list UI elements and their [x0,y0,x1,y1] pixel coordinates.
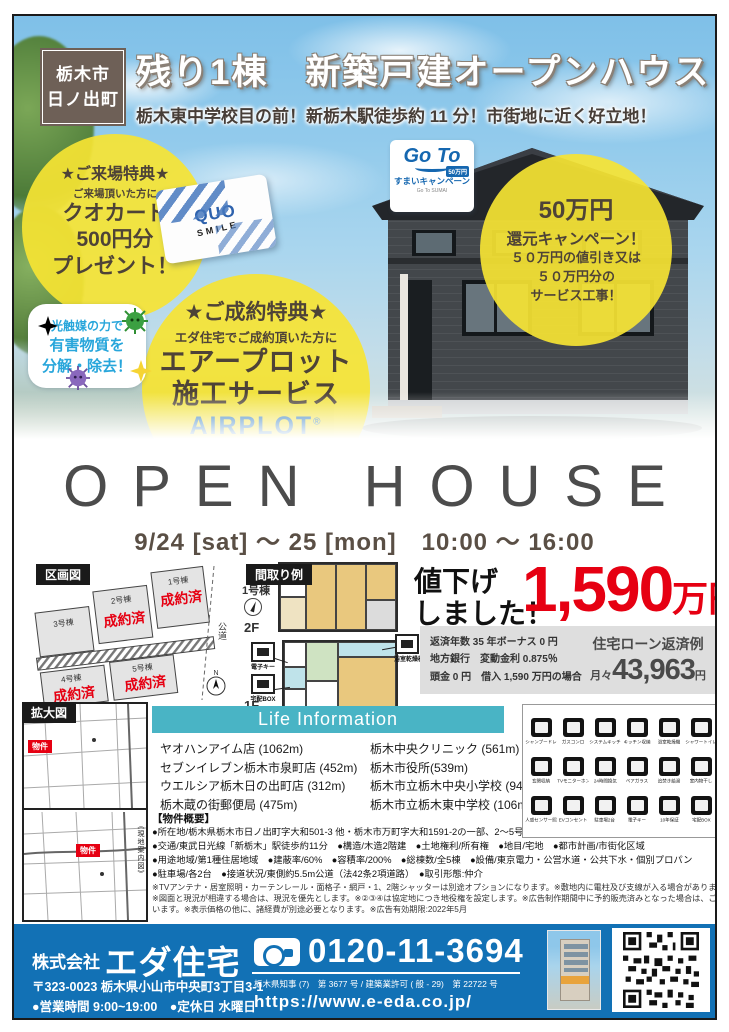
equipment-label: 追焚き給湯 [658,777,681,784]
equipment-icon [627,718,648,737]
equipment-label: システムキッチン [589,738,621,745]
equipment-icon-grid: シャンプードレッサー ガスコンロ システムキッチン キッチン収納 [522,704,717,838]
equipment-label: 10年保証 [660,816,679,823]
equipment-icon [691,718,712,737]
equipment-item: 10年保証 [654,796,685,824]
price-number: 1,590 [522,553,672,625]
equipment-item: 浴室乾燥機 [654,718,685,746]
cashback-campaign-circle: 50万円 還元キャンペーン！ ５０万円の値引き又は ５０万円分の サービス工事！ [480,154,672,346]
delivery-box-icon [251,674,275,694]
header-photo: 栃木市 日ノ出町 残り1棟 新築戸建オープンハウス 栃木東中学校目の前！新栃木駅… [14,16,715,447]
flyer: 栃木市 日ノ出町 残り1棟 新築戸建オープンハウス 栃木東中学校目の前！新栃木駅… [0,0,729,1032]
loan-condition-1: 返済年数 35 年ボーナス 0 円 [430,634,590,652]
life-info-left-column: ヤオハンアイム店 (1062m)セブンイレブン栃木市泉町店 (452m)ウエルシ… [160,740,370,814]
business-hours: ●営業時間 9:00~19:00 ●定休日 水曜日 [32,996,256,1015]
loan-condition-3: 頭金 0 円 借入 1,590 万円の場合 [430,669,590,687]
sparkle-icon [130,360,152,382]
equipment-label: 24時間換気 [593,777,616,784]
bubble-line2: 有害物質を [49,334,124,355]
campaign-title: 50万円 [480,190,672,225]
life-info-item: セブンイレブン栃木市泉町店 (452m) [160,759,370,778]
property-overview-line: ●用途地域/第1種住居地域 ●建蔽率/60% ●容積率/200% ●総棟数/全5… [152,854,717,868]
bath-dryer-icon [395,634,419,654]
loan-monthly-prefix: 月々 [590,670,612,682]
contract-benefit-line2: 施工サービス [142,378,370,410]
qr-code [623,932,699,1008]
office-building [560,939,590,1001]
delivery-box-label: 宅配BOX [250,694,276,703]
equipment-icon [627,757,648,776]
equipment-icon [659,718,680,737]
property-overview-note: います。※表示価格の他に、諸経費が別途必要となります。※広告有効期限:2022年… [152,904,717,915]
airplot-logo: AIRPLOT® [142,414,370,439]
equipment-item: 追焚き給湯 [654,757,685,785]
equipment-label: シャンプードレッサー [525,738,557,745]
contract-benefit-lead: エダ住宅でご成約頂いた方に [142,327,370,346]
campaign-line4: サービス工事！ [480,287,672,306]
life-information-banner: Life Information [152,706,504,733]
company-prefix: 株式会社 [32,953,100,972]
area-map: 拡大図 物件 物件 《現地案内図》 [22,702,148,922]
price-amount: 1,590万円 [522,552,717,626]
property-marker-2: 物件 [76,844,100,857]
location-box: 栃木市 日ノ出町 [42,50,124,124]
goto-campaign-badge: Go To 50万円 すまいキャンペーン Go To SUMAI [390,140,474,212]
equipment-label: 駐車場2台 [595,816,616,823]
equipment-item: 24時間換気 [590,757,621,785]
price-unit: 万円 [672,578,717,619]
contract-benefit-title: ★ご成約特典★ [142,296,370,326]
loan-condition-2: 地方銀行 変動金利 0.875％ [430,651,590,669]
property-overview-notes: ※TVアンテナ・居室照明・カーテンレール・面格子・網戸・1、2階シャッターは別途… [152,882,717,915]
equipment-label: 室内物干し [690,777,713,784]
equipment-item: 室内物干し [686,757,717,785]
equipment-label: 宅配BOX [692,816,711,823]
footer: 株式会社 エダ住宅 0120-11-3694 〒323-0023 栃木県小山市中… [14,924,715,1018]
floor-2f-label: 2F [244,620,259,635]
equipment-label: シャワートイレ [685,738,717,745]
airplot-kana: エアープロット [142,440,370,447]
equipment-icon [659,757,680,776]
equipment-label: TVモニターホン [557,777,589,784]
equipment-icon [691,796,712,815]
goto-sublabel: Go To SUMAI [390,188,474,194]
phone-number: 0120-11-3694 [308,932,524,970]
qr-code-box [612,928,710,1012]
equipment-icon [595,718,616,737]
loan-monthly-block: 住宅ローン返済例 月々43,963円 [590,634,706,687]
equipment-item: 駐車場2台 [590,796,621,824]
contract-benefit-line1: エアープロット [142,346,370,378]
location-line2: 日ノ出町 [47,87,119,113]
equipment-item: 電子キー [622,796,653,824]
equipment-label: 浴室乾燥機 [658,738,681,745]
equipment-label: 電子キー [628,816,646,823]
equipment-item: TVモニターホン [558,757,589,785]
equipment-icon [563,757,584,776]
electronic-key-label: 電子キー [250,662,276,671]
map-divider [24,808,146,810]
campaign-line1: 還元キャンペーン！ [480,227,672,249]
open-house-title: OPEN HOUSE [14,453,715,520]
area-map-side-label: 《現地案内図》 [135,822,145,878]
quo-card-image: QUO SMILE [155,174,277,265]
campaign-line3: ５０万円分の [480,268,672,287]
loan-title: 住宅ローン返済例 [590,634,706,654]
equipment-icon [659,796,680,815]
equipment-item: EVコンセント [558,796,589,824]
visitor-benefit-title: ★ご来場特典★ [22,160,208,184]
property-overview-note: ※TVアンテナ・居室照明・カーテンレール・面格子・網戸・1、2階シャッターは別途… [152,882,717,893]
equipment-item: 玄関収納 [526,757,557,785]
equipment-icon [627,796,648,815]
office-photo [547,930,601,1010]
floor-plan-compass-icon [244,598,262,616]
equipment-icon [691,757,712,776]
lot-map-tag: 区画図 [36,564,90,585]
annotation-electronic-key: 電子キー [250,642,276,671]
virus-icon-green [122,308,148,334]
equipment-icon [531,757,552,776]
property-marker-1: 物件 [28,740,52,753]
equipment-icon [563,718,584,737]
equipment-item: ガスコンロ [558,718,589,746]
compass-icon: N [207,670,225,695]
loan-conditions: 返済年数 35 年ボーナス 0 円 地方銀行 変動金利 0.875％ 頭金 0 … [430,634,590,687]
area-map-tag: 拡大図 [22,702,76,723]
free-dial-icon [254,938,300,966]
equipment-item: キッチン収納 [622,718,653,746]
annotation-bath-dryer: 浴室乾燥機 [394,634,420,663]
license-number: 栃木県知事 (7) 第 3677 号 / 建築業許可 ( 般 - 29) 第 2… [254,978,498,990]
equipment-label: ペアガラス [626,777,648,784]
area-map-drawing [24,704,146,920]
life-info-item: ヤオハンアイム店 (1062m) [160,740,370,759]
equipment-icon [595,757,616,776]
equipment-label: EVコンセント [559,816,588,823]
loan-monthly-amount: 43,963 [612,654,695,686]
registered-mark: ® [313,416,322,427]
main-title: 残り1棟 新築戸建オープンハウス [136,44,710,95]
bath-dryer-label: 浴室乾燥機 [394,654,420,663]
equipment-item: 人感センサー照明 [526,796,557,824]
equipment-item: シャンプードレッサー [526,718,557,746]
company-url: https://www.e-eda.co.jp/ [254,992,472,1012]
equipment-icon [563,796,584,815]
loan-monthly-unit: 円 [695,670,706,682]
sparkle-icon [38,316,58,336]
equipment-item: 宅配BOX [686,796,717,824]
equipment-label: ガスコンロ [562,738,585,745]
subtitle: 栃木東中学校目の前！新栃木駅徒歩約 11 分！市街地に近く好立地！ [136,102,656,127]
public-road-label: 公道 [217,622,227,641]
flyer-frame: 栃木市 日ノ出町 残り1棟 新築戸建オープンハウス 栃木東中学校目の前！新栃木駅… [12,14,717,1020]
loan-monthly: 月々43,963円 [590,654,706,687]
equipment-icon [595,796,616,815]
equipment-icon [531,796,552,815]
equipment-label: 玄関収納 [532,777,550,784]
campaign-line2: ５０万円の値引き又は [480,249,672,268]
open-house-section: OPEN HOUSE 9/24 [sat] ～ 25 [mon] 10:00 ～… [14,447,715,559]
floor-plan-tag: 間取り例 [246,564,312,585]
virus-icon-purple [66,366,90,390]
equipment-label: 人感センサー照明 [525,816,557,823]
equipment-item: シャワートイレ [686,718,717,746]
goto-logo: Go To [390,146,474,166]
electronic-key-icon [251,642,275,662]
annotation-delivery-box: 宅配BOX [250,674,276,703]
airplot-logo-text: AIRPLOT [189,412,313,440]
location-line1: 栃木市 [56,62,110,88]
contract-benefit-circle: ★ご成約特典★ エダ住宅でご成約頂いた方に エアープロット 施工サービス AIR… [142,274,370,447]
equipment-icon [531,718,552,737]
loan-example-box: 返済年数 35 年ボーナス 0 円 地方銀行 変動金利 0.875％ 頭金 0 … [420,626,716,694]
property-overview-note: ※図面と現況が相違する場合は、現況を優先とします。※②③④は協定地につき地役権を… [152,893,717,904]
bubble-line1: 光触媒の力で [51,317,123,334]
floor-plan-1f [282,640,398,712]
company-address: 〒323-0023 栃木県小山市中央町3丁目3-1 [32,976,263,995]
property-overview-line: ●交通/東武日光線「新栃木」駅徒歩約11分 ●構造/木造2階建 ●土地権利/所有… [152,840,717,854]
equipment-item: ペアガラス [622,757,653,785]
property-overview-line: ●駐車場/各2台 ●接道状況/東側約5.5m公道（法42条2項道路） ●取引形態… [152,868,717,882]
footer-divider [252,972,520,974]
compass-n-label: N [213,670,218,677]
equipment-item: システムキッチン [590,718,621,746]
goto-badge-amount: 50万円 [446,166,469,177]
life-info-item: ウエルシア栃木日の出町店 (312m) [160,777,370,796]
equipment-label: キッチン収納 [624,738,651,745]
